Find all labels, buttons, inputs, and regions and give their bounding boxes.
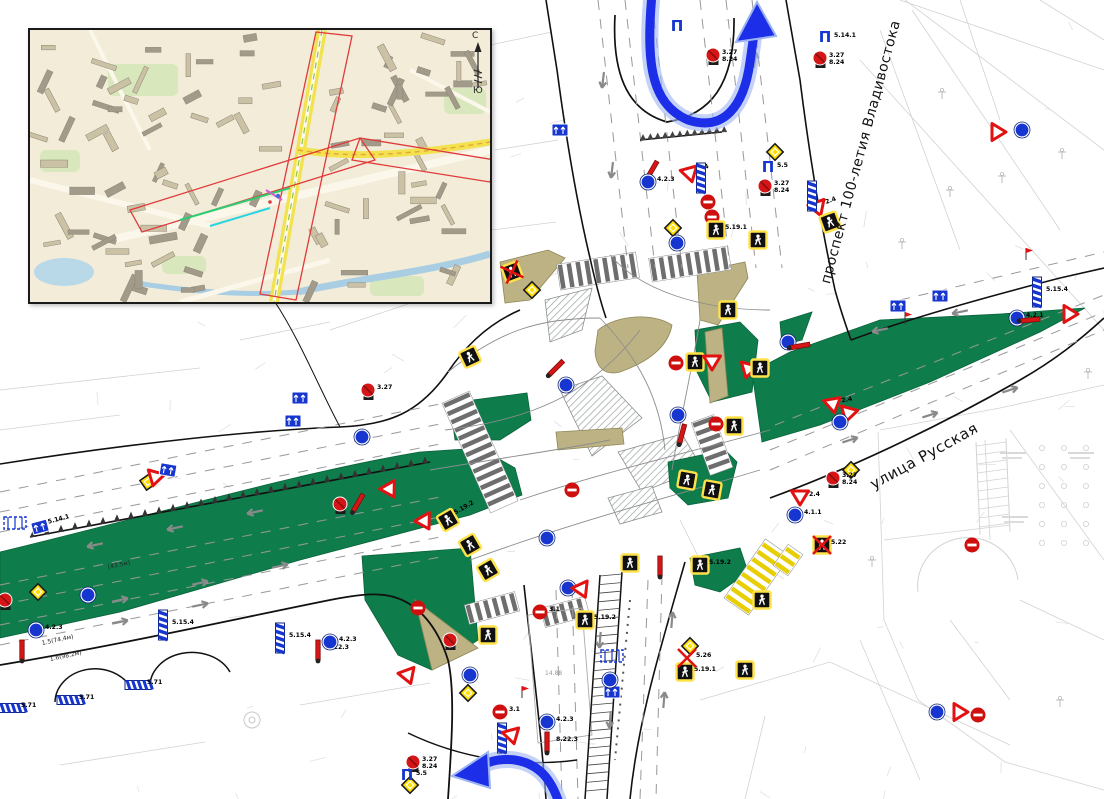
svg-text:5.71: 5.71 — [21, 702, 36, 709]
sign-bluecircle — [669, 235, 685, 251]
traffic-scheme-canvas: П3.278.24П5.14.13.278.24П5.53.278.244.2.… — [0, 0, 1104, 799]
svg-text:5.22: 5.22 — [831, 539, 846, 546]
svg-text:3.27: 3.27 — [377, 384, 392, 391]
svg-text:3.27: 3.27 — [842, 472, 857, 479]
sign-pedestrian-crossing — [622, 555, 639, 572]
sign-noentry — [565, 483, 580, 498]
sign-pedestrian-crossing — [754, 592, 771, 609]
svg-text:4.2.3: 4.2.3 — [657, 176, 675, 183]
svg-text:4.2.3: 4.2.3 — [556, 716, 574, 723]
svg-text:5.19.2: 5.19.2 — [709, 559, 731, 566]
svg-text:5.5: 5.5 — [416, 770, 427, 777]
svg-text:5.19.2: 5.19.2 — [594, 614, 616, 621]
bus-shelter — [601, 650, 623, 662]
svg-text:4.2.3: 4.2.3 — [45, 624, 63, 631]
inset-map-drawing — [30, 30, 490, 302]
sign-nostop: 3.278.24 — [813, 51, 845, 68]
sign-noentry — [669, 356, 684, 371]
svg-text:8.24: 8.24 — [842, 479, 858, 486]
sign-bluerect — [159, 463, 177, 478]
sign-noentry — [709, 417, 724, 432]
svg-text:8.22.3: 8.22.3 — [556, 736, 578, 743]
lane-arrow — [191, 600, 208, 610]
sign-yield — [1064, 306, 1078, 323]
sign-yield: 2.4 — [792, 491, 821, 505]
svg-text:8.24: 8.24 — [829, 59, 845, 66]
sign-vstripe: 5.15.4 — [276, 623, 312, 653]
sign-gantry: П — [671, 17, 684, 35]
sign-pedestrian-crossing — [737, 662, 754, 679]
sign-bluecircle — [80, 587, 96, 603]
sign-vstripe: 5.15.4 — [1033, 277, 1069, 307]
svg-text:5.15.4: 5.15.4 — [1046, 286, 1069, 293]
sign-flag — [522, 686, 529, 698]
sign-bluecircle — [1014, 122, 1030, 138]
lane-arrow — [841, 434, 858, 445]
sign-nostop: 3.27 — [361, 383, 392, 400]
sign-bluecircle: 4.1.1 — [787, 507, 822, 523]
u-turn-arrowhead — [452, 752, 490, 788]
sign-pedestrian-crossing — [702, 480, 722, 500]
sign-pedestrian-crossing — [677, 470, 697, 490]
svg-text:5.5: 5.5 — [777, 162, 788, 169]
sign-pedestrian-crossing — [750, 232, 767, 249]
compass-south-label: Ю — [473, 86, 483, 96]
sign-mainroad — [460, 685, 476, 701]
sign-nostop: 3.278.24 — [758, 179, 790, 196]
sign-bluecircle — [539, 530, 555, 546]
svg-text:5.19.1: 5.19.1 — [694, 666, 716, 673]
sign-vstripe — [498, 723, 507, 753]
svg-text:3.27: 3.27 — [829, 52, 844, 59]
sign-noentry — [701, 195, 716, 210]
lane-arrow — [660, 692, 668, 709]
overhead-gantry-icon: П — [401, 766, 414, 784]
sign-yield — [954, 704, 968, 721]
sign-bluerect — [890, 300, 906, 312]
sign-bluerect: 5.14.1 — [31, 513, 72, 535]
svg-text:3.27: 3.27 — [422, 756, 437, 763]
sign-bluecircle — [929, 704, 945, 720]
svg-text:2.4: 2.4 — [824, 195, 837, 206]
svg-text:3.1: 3.1 — [549, 606, 560, 613]
svg-text:2.4: 2.4 — [809, 491, 821, 498]
sign-mainroad — [665, 220, 681, 236]
sign-noentry: 3.1 — [493, 705, 520, 720]
sign-pedestrian-crossing: 5.19.1 — [708, 222, 747, 239]
compass-north-label: С — [472, 31, 478, 41]
sign-bluecircle — [832, 414, 848, 430]
svg-text:5.71: 5.71 — [147, 679, 162, 686]
svg-text:3.27: 3.27 — [722, 49, 737, 56]
sign-bluecircle: 4.2.3 — [640, 174, 675, 190]
sign-pedestrian-crossing — [476, 558, 499, 581]
sign-bluecircle — [462, 667, 478, 683]
sign-redpost — [545, 359, 565, 379]
u-turn-arrowhead — [736, 2, 776, 42]
svg-text:4.2.3: 4.2.3 — [339, 636, 357, 643]
svg-text:5.14.1: 5.14.1 — [47, 513, 70, 525]
svg-text:3.1: 3.1 — [509, 706, 520, 713]
sign-noentry — [411, 601, 426, 616]
sign-bluerect — [552, 124, 568, 136]
sign-pedestrian-crossing — [726, 418, 743, 435]
overhead-gantry-icon: П — [762, 158, 775, 176]
sign-redpost — [20, 640, 25, 663]
sign-bluecircle: 4.2.3 — [539, 714, 574, 730]
svg-text:5.19.1: 5.19.1 — [725, 224, 747, 231]
sign-pedestrian-crossing — [687, 354, 704, 371]
svg-text:8.24: 8.24 — [422, 763, 438, 770]
svg-text:5.15.4: 5.15.4 — [289, 632, 312, 639]
sign-redpost: 8.22.3 — [545, 732, 578, 755]
lane-arrow — [599, 72, 608, 89]
sign-pedestrian-crossing: 5.22 — [813, 536, 846, 554]
svg-text:4.1.1: 4.1.1 — [804, 509, 822, 516]
sign-yield — [992, 124, 1006, 141]
sign-pedestrian-crossing — [720, 302, 737, 319]
sign-hstripe: 5.71 — [0, 702, 36, 713]
sign-gantry: П5.14.1 — [819, 28, 856, 46]
road-marking-label: 14.88 — [545, 670, 562, 677]
sign-yield — [398, 667, 419, 686]
sign-vstripe: 5.15.4 — [159, 610, 195, 640]
sign-vstripe — [808, 181, 817, 211]
sign-bluecircle — [670, 407, 686, 423]
lane-arrow — [921, 409, 938, 420]
svg-text:8.24: 8.24 — [722, 56, 738, 63]
svg-text:3.27: 3.27 — [774, 180, 789, 187]
sign-bluecircle — [602, 672, 618, 688]
inset-map: С Ю — [28, 28, 492, 304]
svg-text:5.14.1: 5.14.1 — [834, 32, 856, 39]
sign-redpost — [658, 556, 663, 579]
overhead-gantry-icon: П — [671, 17, 684, 35]
svg-text:5.15.4: 5.15.4 — [172, 619, 195, 626]
sign-vstripe — [697, 163, 706, 193]
sign-pedestrian-crossing — [459, 346, 482, 369]
sign-noentry — [965, 538, 980, 553]
sign-bluerect — [292, 392, 308, 404]
sign-nostop: 3.278.24 — [706, 48, 738, 65]
sign-hstripe: 5.71 — [57, 694, 94, 705]
sign-nostop: 3.278.24 — [826, 471, 858, 488]
svg-text:5.71: 5.71 — [79, 694, 94, 701]
sign-bluerect — [285, 415, 301, 427]
sign-noentry — [971, 708, 986, 723]
lane-arrow — [608, 162, 617, 179]
svg-text:5.26: 5.26 — [696, 652, 711, 659]
svg-text:8.24: 8.24 — [774, 187, 790, 194]
sign-hstripe: 5.71 — [125, 679, 162, 690]
sign-pedestrian-crossing — [752, 360, 769, 377]
overhead-gantry-icon: П — [819, 28, 832, 46]
sign-pedestrian-crossing — [480, 627, 497, 644]
lane-arrow — [596, 632, 604, 649]
sign-nostop — [0, 593, 12, 610]
sign-bluecircle — [354, 429, 370, 445]
sign-bluerect — [932, 290, 948, 302]
sign-bluecircle — [558, 377, 574, 393]
